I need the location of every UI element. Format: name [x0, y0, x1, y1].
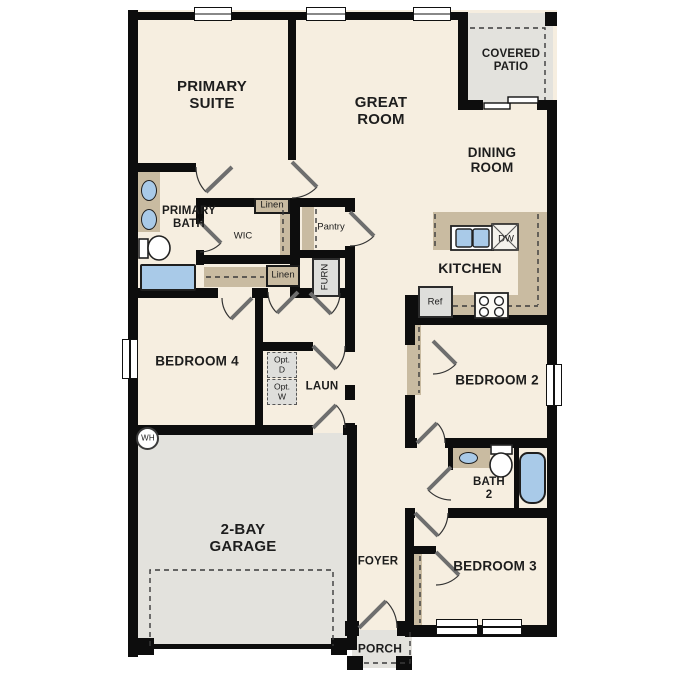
wall-segment — [448, 448, 453, 470]
window-symbol — [413, 7, 451, 21]
room-label-bath2: BATH 2 — [471, 476, 507, 502]
room-label-great-room: GREAT ROOM — [346, 95, 416, 129]
wall-segment — [331, 638, 347, 655]
wall-segment — [405, 625, 557, 637]
label-dishwasher: DW — [498, 235, 514, 246]
wall-segment — [347, 656, 363, 670]
wall-segment — [345, 385, 355, 400]
window-symbol — [436, 619, 478, 635]
window-symbol — [194, 7, 232, 21]
room-label-primary-bath: PRIMARY BATH — [156, 205, 222, 231]
sink-primary-1 — [141, 180, 157, 201]
sink-bath2 — [459, 452, 478, 464]
wall-segment — [196, 255, 300, 264]
room-label-laundry: LAUN — [306, 381, 339, 394]
wic-shelf — [280, 207, 290, 255]
wall-segment — [468, 100, 483, 110]
room-label-garage: 2-BAY GARAGE — [188, 522, 298, 556]
wall-segment — [448, 508, 557, 518]
wall-segment — [405, 395, 415, 443]
room-label-foyer: FOYER — [358, 556, 399, 569]
sink-primary-2 — [141, 209, 157, 230]
room-label-porch: PORCH — [358, 642, 402, 655]
hall-shelf — [204, 267, 266, 287]
window-symbol — [306, 7, 346, 21]
window-symbol — [546, 364, 562, 406]
wall-segment — [396, 656, 412, 670]
pantry-shelf — [302, 207, 314, 250]
room-label-bedroom2: BEDROOM 2 — [455, 372, 539, 387]
wall-segment — [405, 518, 414, 625]
wall-segment — [138, 644, 347, 649]
label-opt-washer: Opt. W — [272, 382, 292, 401]
wall-segment — [547, 406, 557, 637]
label-water-heater: WH — [141, 435, 155, 444]
wall-segment — [255, 288, 263, 425]
label-linen-lower: Linen — [271, 271, 294, 282]
kitchen-counter-top — [433, 212, 547, 250]
room-label-primary-suite: PRIMARY SUITE — [165, 79, 260, 113]
room-label-wic: WIC — [234, 232, 252, 243]
wall-segment — [445, 438, 557, 448]
window-symbol — [122, 339, 138, 379]
label-opt-dryer: Opt. D — [272, 355, 292, 374]
wall-segment — [405, 508, 415, 518]
room-label-pantry: Pantry — [317, 223, 344, 234]
label-linen-upper: Linen — [260, 201, 283, 212]
bathtub-primary — [140, 264, 196, 291]
room-label-bedroom3: BEDROOM 3 — [453, 558, 537, 573]
room-label-covered-patio: COVERED PATIO — [480, 48, 542, 74]
wall-segment — [128, 163, 196, 172]
floor-plan: PRIMARY SUITE GREAT ROOM COVERED PATIO D… — [0, 0, 687, 687]
wall-segment — [288, 12, 296, 160]
wall-segment — [300, 250, 345, 258]
label-furnace: FURN — [321, 264, 332, 290]
wall-segment — [345, 246, 355, 352]
window-symbol — [482, 619, 522, 635]
label-refrigerator: Ref — [428, 298, 443, 309]
wall-segment — [298, 288, 312, 298]
wall-segment — [196, 250, 204, 265]
wall-segment — [347, 428, 357, 650]
wall-segment — [547, 100, 557, 368]
wall-segment — [405, 295, 418, 325]
wall-segment — [405, 325, 415, 345]
wall-segment — [128, 10, 138, 657]
wall-segment — [345, 198, 355, 212]
wall-segment — [263, 342, 313, 351]
room-label-kitchen: KITCHEN — [438, 261, 502, 277]
kitchen-counter-right — [518, 250, 547, 318]
wall-segment — [545, 12, 557, 26]
bathtub-bath2 — [519, 452, 546, 504]
room-label-dining-room: DINING ROOM — [457, 145, 527, 175]
room-label-bedroom4: BEDROOM 4 — [155, 353, 239, 368]
wall-segment — [458, 13, 468, 110]
